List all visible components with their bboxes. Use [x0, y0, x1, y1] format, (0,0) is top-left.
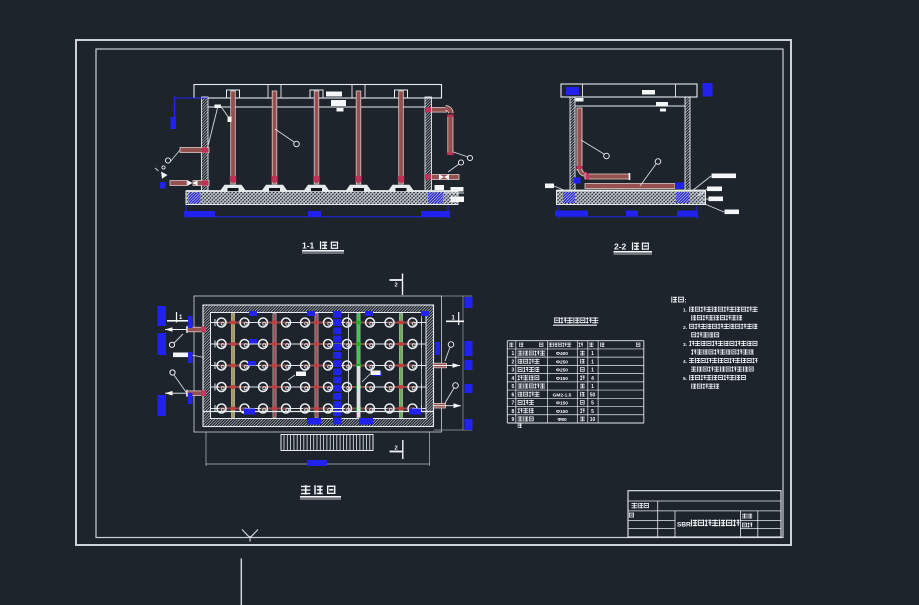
svg-text:1-1: 1-1	[302, 241, 315, 251]
svg-text:1: 1	[591, 351, 594, 357]
svg-text:50: 50	[590, 392, 596, 398]
svg-text:10: 10	[590, 417, 596, 423]
svg-text:Φ250: Φ250	[556, 368, 568, 374]
svg-text:4: 4	[591, 376, 594, 382]
svg-text:1: 1	[591, 359, 594, 365]
svg-text:8: 8	[512, 409, 515, 415]
svg-text:Φ100: Φ100	[556, 409, 568, 415]
svg-text:2: 2	[395, 446, 398, 452]
svg-text:1: 1	[512, 351, 515, 357]
svg-text:5.: 5.	[683, 376, 687, 382]
svg-text:1: 1	[591, 384, 594, 390]
svg-text:5: 5	[591, 409, 594, 415]
svg-text::: :	[685, 299, 687, 305]
svg-text:1.: 1.	[683, 308, 687, 314]
svg-text:2: 2	[512, 359, 515, 365]
svg-text:Φ150: Φ150	[556, 401, 568, 407]
svg-text:9: 9	[512, 417, 515, 423]
svg-text:SBR: SBR	[677, 522, 691, 529]
svg-text:2.: 2.	[683, 325, 687, 331]
svg-text:Φ150: Φ150	[556, 376, 568, 382]
svg-text:Φ250: Φ250	[556, 359, 568, 365]
svg-text:5: 5	[591, 401, 594, 407]
svg-text:6: 6	[512, 392, 515, 398]
svg-text:1: 1	[591, 368, 594, 374]
svg-text:4: 4	[512, 376, 515, 382]
svg-text:7: 7	[512, 401, 515, 407]
svg-text:2-2: 2-2	[614, 242, 627, 252]
svg-text:Φ80: Φ80	[557, 417, 567, 423]
svg-text:5: 5	[512, 384, 515, 390]
svg-text:3.: 3.	[683, 342, 687, 348]
svg-text:GM2-1.5: GM2-1.5	[553, 392, 572, 398]
svg-text:2: 2	[395, 283, 398, 289]
svg-text:4.: 4.	[683, 359, 687, 365]
svg-text:3: 3	[512, 368, 515, 374]
svg-text:Φ400: Φ400	[556, 351, 568, 357]
